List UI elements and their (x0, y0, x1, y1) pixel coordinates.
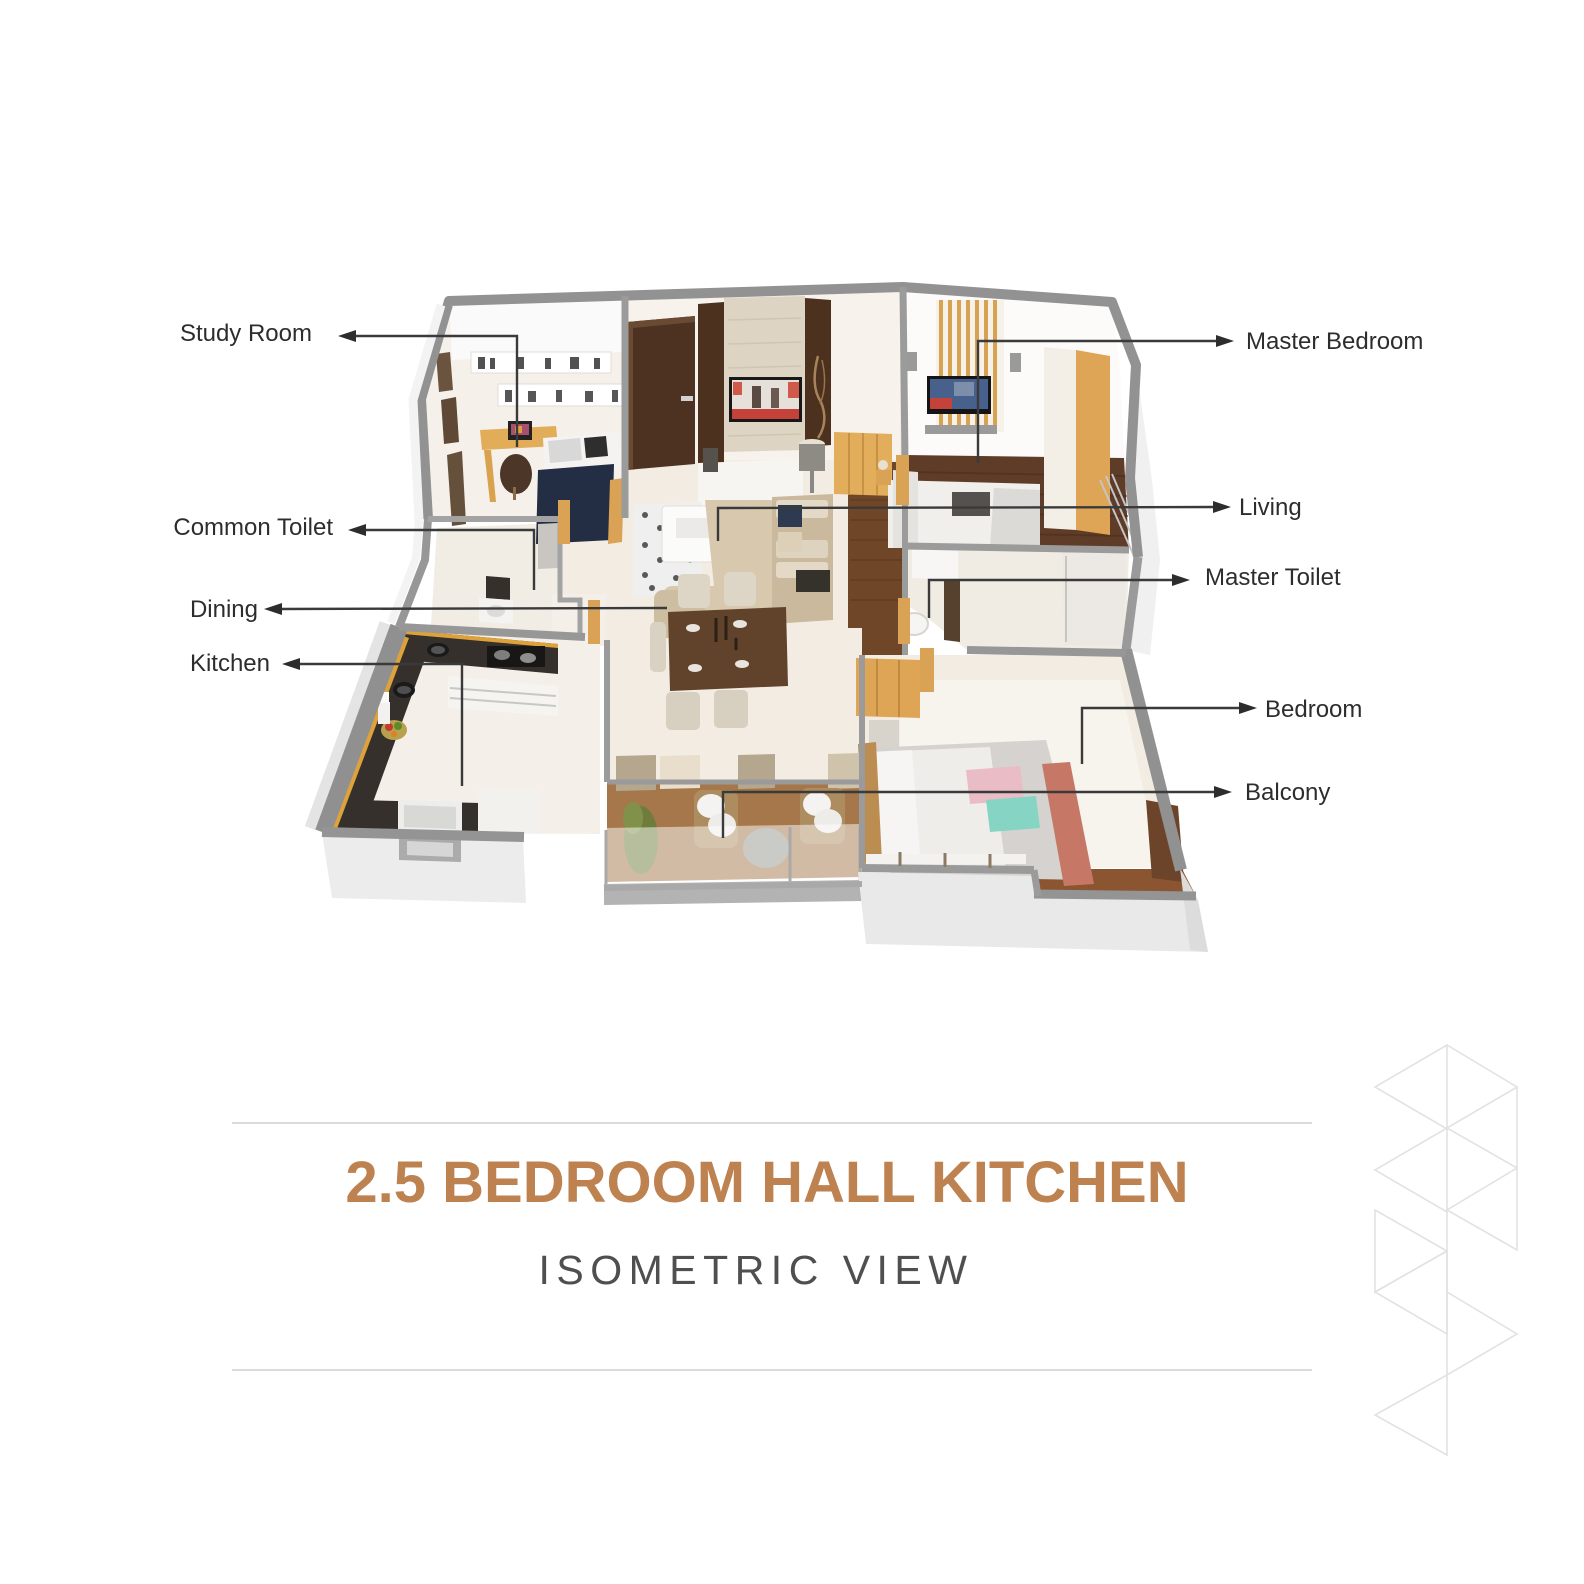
svg-text:Kitchen: Kitchen (190, 650, 270, 677)
svg-text:Living: Living (1239, 494, 1302, 521)
svg-text:Study Room: Study Room (180, 320, 312, 347)
svg-text:Master Toilet: Master Toilet (1205, 564, 1341, 591)
svg-text:Dining: Dining (190, 596, 258, 623)
svg-text:Balcony: Balcony (1245, 779, 1330, 806)
svg-text:Common Toilet: Common Toilet (173, 514, 333, 541)
svg-text:2.5 BEDROOM HALL KITCHEN: 2.5 BEDROOM HALL KITCHEN (345, 1150, 1188, 1215)
svg-text:Master Bedroom: Master Bedroom (1246, 328, 1423, 355)
svg-text:Bedroom: Bedroom (1265, 696, 1362, 723)
svg-text:ISOMETRIC VIEW: ISOMETRIC VIEW (539, 1247, 974, 1293)
